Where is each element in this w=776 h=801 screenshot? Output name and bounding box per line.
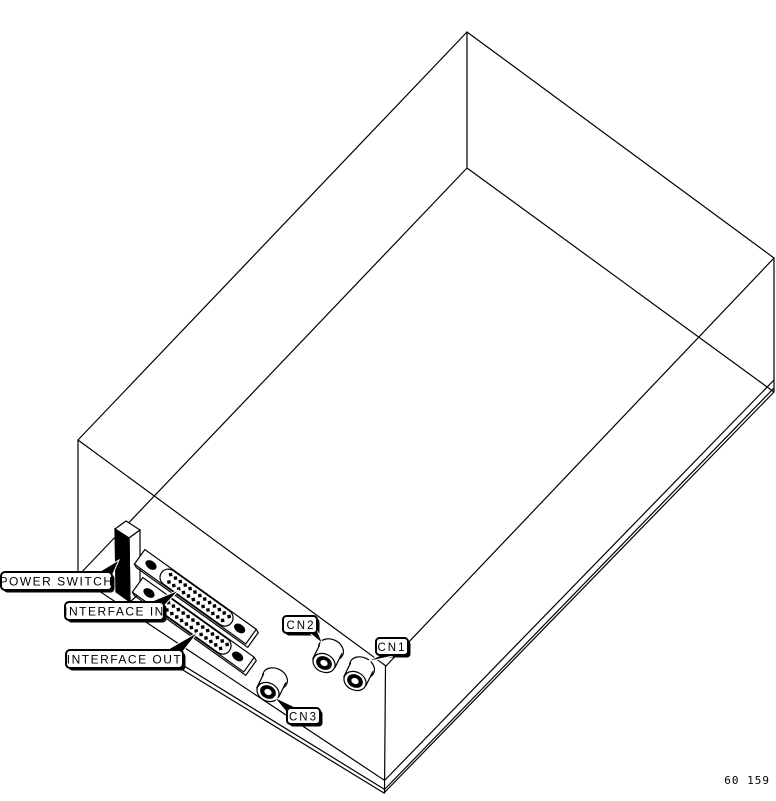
callout-cn1: CN1 [366, 638, 411, 662]
label-cn3: CN3 [289, 712, 318, 724]
figure-number: 60 159 [724, 774, 770, 787]
label-cn1: CN1 [377, 642, 406, 654]
hidden-bottom-right-edge [467, 168, 774, 392]
label-cn2: CN2 [286, 620, 315, 632]
chassis-wireframe [78, 32, 774, 793]
connector-cn2[interactable] [310, 635, 347, 677]
connector-cn3[interactable] [254, 664, 291, 706]
callout-cn2: CN2 [283, 616, 323, 644]
label-power-switch: POWER SWITCH [0, 575, 114, 589]
power-switch-rocker[interactable] [115, 529, 130, 602]
rear-panel-diagram: POWER SWITCH INTERFACE IN INTERFACE OUT … [0, 0, 776, 801]
label-interface-in: INTERFACE IN [64, 605, 165, 619]
label-interface-out: INTERFACE OUT [67, 653, 183, 667]
hidden-bottom-left-edge [78, 168, 467, 576]
callout-power-switch: POWER SWITCH [0, 560, 119, 593]
diagram-page: POWER SWITCH INTERFACE IN INTERFACE OUT … [0, 0, 776, 801]
callout-interface-out: INTERFACE OUT [66, 632, 198, 671]
